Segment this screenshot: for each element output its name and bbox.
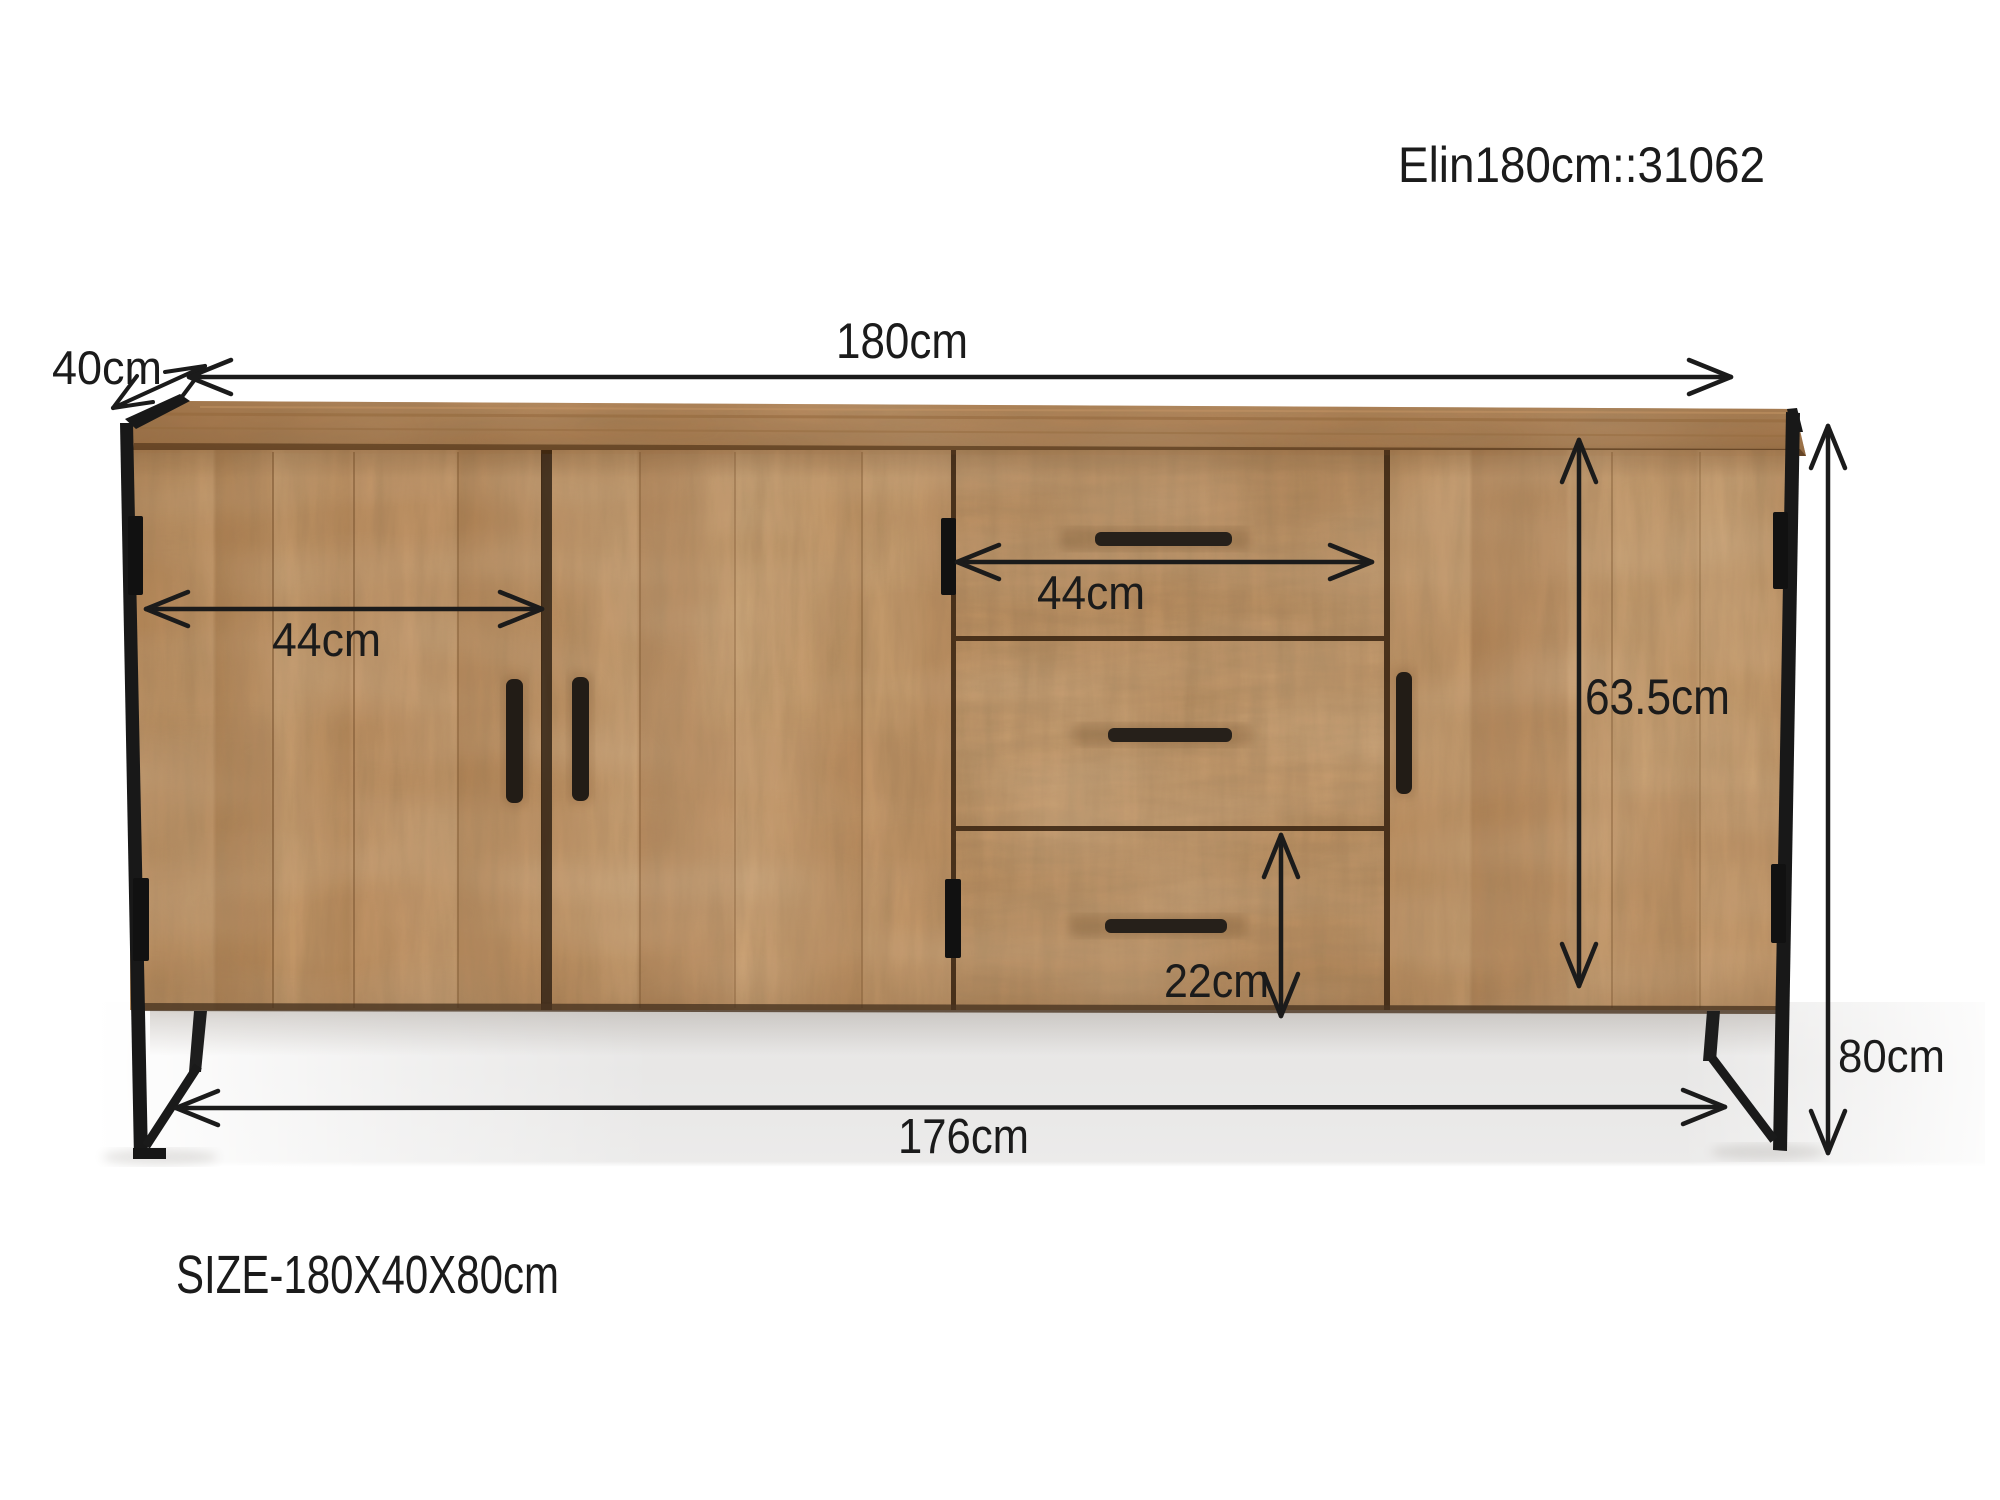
svg-text:SIZE-180X40X80cm: SIZE-180X40X80cm <box>176 1245 559 1305</box>
svg-text:Elin180cm::31062: Elin180cm::31062 <box>1398 137 1765 193</box>
svg-text:63.5cm: 63.5cm <box>1585 669 1730 725</box>
svg-text:80cm: 80cm <box>1838 1030 1945 1082</box>
svg-text:22cm: 22cm <box>1164 954 1269 1007</box>
svg-text:180cm: 180cm <box>836 313 968 369</box>
svg-text:40cm: 40cm <box>52 341 162 394</box>
svg-text:44cm: 44cm <box>1037 566 1145 619</box>
svg-text:176cm: 176cm <box>898 1110 1029 1164</box>
svg-text:44cm: 44cm <box>272 613 381 666</box>
